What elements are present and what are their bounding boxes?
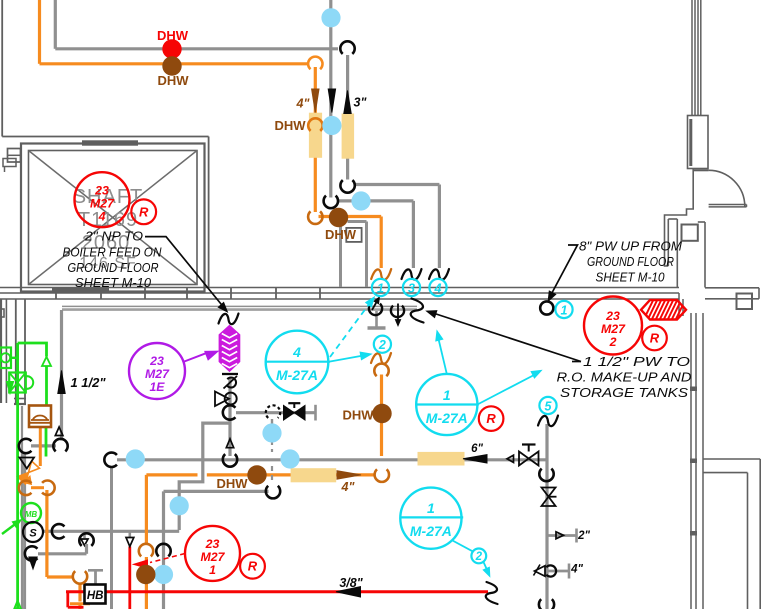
svg-text:2" NP TO: 2" NP TO — [84, 229, 143, 243]
svg-text:4": 4" — [296, 97, 311, 111]
svg-text:HB: HB — [87, 590, 104, 602]
svg-text:M-27A: M-27A — [410, 523, 452, 539]
svg-text:M27: M27 — [90, 197, 115, 211]
svg-text:5: 5 — [545, 399, 553, 413]
svg-text:4": 4" — [570, 564, 583, 576]
svg-text:1 1/2": 1 1/2" — [70, 375, 106, 390]
svg-text:1: 1 — [209, 563, 216, 577]
svg-text:1E: 1E — [149, 380, 165, 394]
svg-text:2: 2 — [378, 338, 386, 352]
svg-text:3": 3" — [354, 96, 368, 110]
svg-text:1 1/2" PW TO: 1 1/2" PW TO — [583, 354, 690, 369]
svg-text:2: 2 — [475, 551, 483, 563]
svg-text:S: S — [29, 528, 37, 540]
svg-text:M27: M27 — [601, 322, 626, 336]
svg-text:23: 23 — [94, 184, 109, 198]
svg-text:DHW: DHW — [325, 227, 357, 242]
svg-text:R.O. MAKE-UP AND: R.O. MAKE-UP AND — [557, 370, 692, 385]
svg-text:R: R — [248, 559, 258, 574]
svg-text:1: 1 — [377, 281, 384, 295]
svg-text:M27: M27 — [201, 550, 226, 564]
svg-text:4: 4 — [434, 281, 442, 295]
svg-text:1: 1 — [443, 387, 451, 403]
svg-text:DHW: DHW — [216, 476, 248, 491]
svg-text:R: R — [139, 204, 149, 219]
svg-text:4: 4 — [98, 210, 106, 224]
svg-text:SHEET M-10: SHEET M-10 — [596, 271, 665, 285]
svg-text:4": 4" — [341, 480, 356, 494]
svg-text:R: R — [486, 411, 496, 426]
svg-text:23: 23 — [205, 537, 220, 551]
svg-text:DHW: DHW — [157, 73, 189, 88]
svg-text:1: 1 — [561, 303, 568, 317]
svg-text:4: 4 — [292, 344, 301, 360]
svg-text:23: 23 — [605, 309, 620, 323]
svg-text:M-27A: M-27A — [426, 410, 468, 426]
svg-text:3/8": 3/8" — [339, 576, 363, 590]
svg-text:M27: M27 — [145, 367, 170, 381]
svg-text:3: 3 — [408, 281, 415, 295]
svg-text:SHEET M-10: SHEET M-10 — [75, 276, 151, 290]
svg-text:1: 1 — [427, 500, 435, 516]
svg-text:GROUND FLOOR: GROUND FLOOR — [587, 255, 674, 269]
svg-text:6": 6" — [471, 443, 483, 455]
svg-text:STORAGE TANKS: STORAGE TANKS — [560, 385, 689, 400]
svg-text:2": 2" — [577, 530, 590, 542]
svg-text:2: 2 — [609, 335, 617, 349]
svg-text:DHW: DHW — [342, 408, 374, 423]
svg-text:DHW: DHW — [157, 28, 189, 43]
svg-text:BOILER FEED ON: BOILER FEED ON — [63, 245, 163, 259]
svg-text:DHW: DHW — [274, 118, 306, 133]
svg-text:23: 23 — [149, 354, 164, 368]
svg-text:MB: MB — [25, 510, 38, 519]
svg-text:8" PW UP FROM: 8" PW UP FROM — [579, 240, 683, 254]
svg-text:M-27A: M-27A — [276, 367, 318, 383]
svg-text:GROUND FLOOR: GROUND FLOOR — [68, 261, 159, 275]
svg-text:R: R — [650, 331, 660, 346]
